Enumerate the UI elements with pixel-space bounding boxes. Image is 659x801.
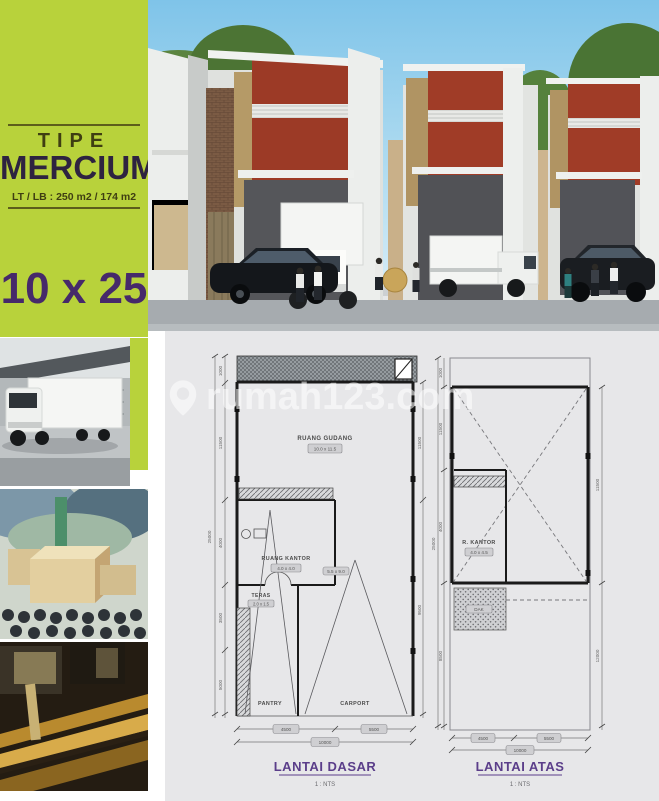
svg-text:1000: 1000 bbox=[438, 367, 443, 378]
room-label: R. KANTOR bbox=[462, 540, 495, 546]
svg-text:4500: 4500 bbox=[281, 727, 292, 732]
room-dim: 4.0 x 4.5 bbox=[470, 550, 488, 555]
room-dim: 5.5 x 9.0 bbox=[327, 569, 345, 574]
room-dim: 2.0 x 1.5 bbox=[253, 601, 270, 606]
room-dim: 4.0 x 4.0 bbox=[277, 566, 295, 571]
plan-title: LANTAI ATAS bbox=[476, 759, 565, 774]
divider bbox=[8, 124, 140, 126]
lt-lb-spec: LT / LB : 250 m2 / 174 m2 bbox=[0, 191, 148, 203]
room-label: RUANG KANTOR bbox=[261, 556, 310, 562]
left-dimensions: 25000 1000 11500 4000 8500 bbox=[432, 356, 447, 730]
svg-text:3500: 3500 bbox=[218, 612, 223, 623]
photo-truck-warehouse bbox=[0, 338, 148, 486]
columns bbox=[235, 406, 416, 654]
svg-text:5500: 5500 bbox=[544, 736, 555, 741]
red-facade-panel bbox=[568, 83, 640, 185]
svg-text:25000: 25000 bbox=[207, 530, 212, 543]
svg-text:11500: 11500 bbox=[218, 436, 223, 449]
svg-text:12000: 12000 bbox=[595, 649, 600, 662]
red-facade-panel bbox=[428, 70, 506, 182]
svg-text:25000: 25000 bbox=[432, 537, 436, 550]
room-dim: 10.0 x 11.5 bbox=[314, 447, 337, 452]
outer-walls bbox=[237, 382, 413, 716]
svg-text:5000: 5000 bbox=[218, 679, 223, 690]
svg-text:11500: 11500 bbox=[595, 478, 600, 491]
svg-text:4000: 4000 bbox=[438, 521, 443, 532]
right-dimensions: 11500 12000 bbox=[595, 385, 605, 730]
left-house-edge bbox=[148, 48, 194, 300]
green-sliver bbox=[130, 338, 148, 470]
hero-house-render bbox=[148, 0, 659, 331]
floorplan-lantai-atas: R. KANTOR 4.0 x 4.5 DAK 25000 1000 11500… bbox=[432, 348, 657, 798]
plan-title: LANTAI DASAR bbox=[274, 759, 377, 774]
svg-text:9500: 9500 bbox=[417, 604, 422, 615]
svg-text:10000: 10000 bbox=[514, 748, 527, 753]
room-label: TERAS bbox=[252, 593, 271, 599]
rear-wall-hatch bbox=[237, 356, 417, 382]
right-dimensions: 11500 9500 bbox=[417, 380, 426, 718]
inner-walls bbox=[237, 500, 335, 716]
svg-text:11500: 11500 bbox=[417, 436, 422, 449]
divider bbox=[8, 207, 140, 209]
room-label: CARPORT bbox=[340, 701, 370, 707]
photo-boxes-conveyor bbox=[0, 489, 148, 639]
plan-scale: 1 : NTS bbox=[315, 782, 335, 788]
type-info-panel: TIPE MERCIUM LT / LB : 250 m2 / 174 m2 1… bbox=[0, 0, 148, 337]
room-label: DAK bbox=[474, 607, 484, 612]
wc-fixtures bbox=[242, 529, 267, 539]
plan-scale: 1 : NTS bbox=[510, 782, 530, 788]
svg-text:8500: 8500 bbox=[438, 650, 443, 661]
svg-text:1000: 1000 bbox=[218, 365, 223, 376]
svg-text:5500: 5500 bbox=[369, 727, 380, 732]
type-name: MERCIUM bbox=[0, 149, 148, 187]
left-dimensions: 25000 1000 11500 4000 3500 5000 bbox=[207, 354, 228, 718]
room-label: PANTRY bbox=[258, 701, 282, 707]
photo-pallets-warehouse bbox=[0, 642, 148, 791]
svg-text:4000: 4000 bbox=[218, 537, 223, 548]
stairs bbox=[454, 476, 506, 487]
floorplan-lantai-dasar: RUANG GUDANG 10.0 x 11.5 RUANG KANTOR 4.… bbox=[195, 348, 435, 798]
ramp-mark bbox=[245, 510, 296, 714]
room-label: RUANG GUDANG bbox=[297, 436, 352, 442]
svg-text:10000: 10000 bbox=[319, 740, 332, 745]
lot-size: 10 x 25 bbox=[0, 264, 148, 314]
svg-text:11500: 11500 bbox=[438, 422, 443, 435]
bottom-dimensions: 4500 5500 10000 bbox=[234, 725, 416, 747]
hay-bale bbox=[383, 268, 407, 292]
red-facade-panel bbox=[252, 60, 348, 180]
stairs-upper bbox=[239, 488, 333, 499]
stairs-run bbox=[237, 608, 250, 716]
bottom-dimensions: 4500 5500 10000 bbox=[449, 734, 591, 755]
svg-text:4500: 4500 bbox=[478, 736, 489, 741]
carport-mark bbox=[305, 560, 407, 714]
